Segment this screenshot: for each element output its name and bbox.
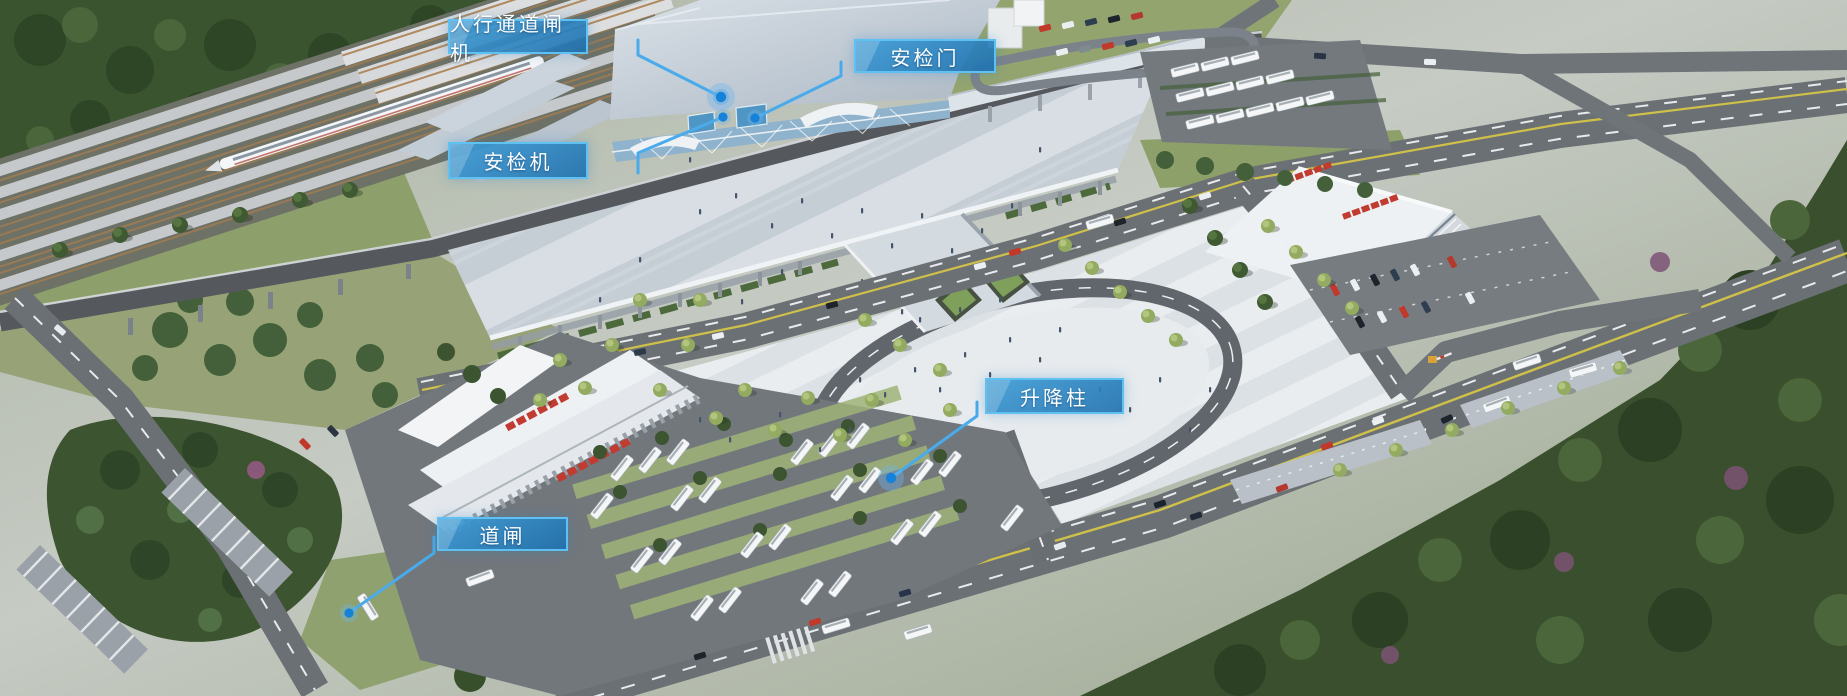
callout-lifting-bollard: 升降柱 — [985, 378, 1124, 414]
callout-security-check-door-label: 安检门 — [891, 42, 960, 71]
callout-security-scanner: 安检机 — [448, 142, 588, 179]
callout-barrier-gate: 道闸 — [437, 517, 568, 551]
callout-security-check-door: 安检门 — [854, 39, 996, 73]
station-aerial-annotated-rendering: 人行通道闸机 安检门 安检机 升降柱 道闸 — [0, 0, 1847, 696]
callout-pedestrian-channel-gate-label: 人行通道闸机 — [450, 8, 586, 66]
callout-security-scanner-label: 安检机 — [484, 146, 553, 175]
callout-barrier-gate-label: 道闸 — [480, 520, 526, 549]
station-3d-scene — [0, 0, 1847, 696]
callout-lifting-bollard-label: 升降柱 — [1020, 382, 1089, 411]
callout-pedestrian-channel-gate: 人行通道闸机 — [448, 19, 588, 54]
